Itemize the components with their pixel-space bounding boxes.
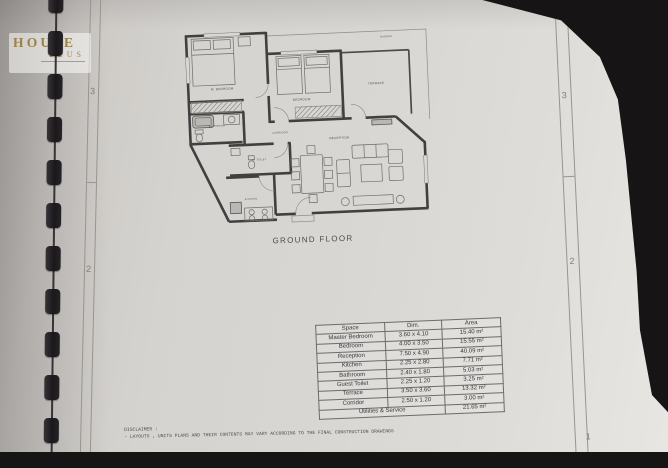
bedroom-beds [276, 54, 331, 94]
binding-coil [46, 160, 61, 185]
margin-mark: 3 [561, 90, 566, 100]
label-kitchen: KITCHEN [245, 197, 258, 201]
cell-utilities-area: 21.65 m² [445, 402, 504, 414]
door-arcs [255, 80, 370, 216]
binding-coil [48, 31, 63, 56]
kitchen-fixtures [230, 201, 273, 222]
entrance-step [292, 215, 314, 222]
floor-plan: GARDEN M. BEDROOM BEDROOM TERRACE BATHRO… [180, 20, 447, 233]
binding-coil [45, 289, 60, 314]
dining-set [290, 145, 333, 204]
disclaimer: DISCLAIMER : - LAYOUTS , UNITS PLANS AND… [124, 420, 470, 442]
margin-mark: 3 [90, 86, 95, 96]
binding-coil [44, 418, 59, 443]
binding-coil [47, 74, 62, 99]
garden-fence [266, 29, 430, 126]
label-garden: GARDEN [380, 35, 392, 39]
ruler-tick [86, 182, 97, 183]
binding-coil [47, 117, 62, 142]
label-guest-toilet: G. TOILET [252, 158, 267, 162]
plan-title: GROUND FLOOR [258, 233, 368, 246]
label-corridor: CORRIDOR [272, 131, 288, 135]
sofa-set [335, 119, 405, 206]
label-bathroom: BATHROOM [209, 124, 225, 128]
margin-mark: 1 [586, 431, 591, 441]
bathroom-fixtures [192, 114, 240, 142]
ruler-line [566, 0, 590, 467]
dimensions-table: Space Dim. Area Master Bedroom 3.60 x 4.… [315, 317, 505, 420]
binding-coil [46, 203, 61, 228]
binding-coil [46, 246, 61, 271]
label-terrace: TERRACE [368, 81, 385, 86]
right-margin-ruler: 3 2 1 [554, 0, 590, 468]
ruler-line [554, 0, 578, 468]
label-bedroom: BEDROOM [293, 97, 311, 102]
binding-coil [45, 332, 60, 357]
binding-coil [48, 0, 63, 13]
label-reception: RECEPTION [329, 135, 349, 140]
margin-mark: 2 [569, 256, 574, 266]
binding-coil [44, 375, 59, 400]
master-bed [191, 37, 252, 87]
margin-mark: 2 [86, 264, 91, 274]
label-master-bedroom: M. BEDROOM [211, 86, 234, 91]
document-page: 3 2 3 2 1 HOUSE PLUS [0, 0, 668, 452]
